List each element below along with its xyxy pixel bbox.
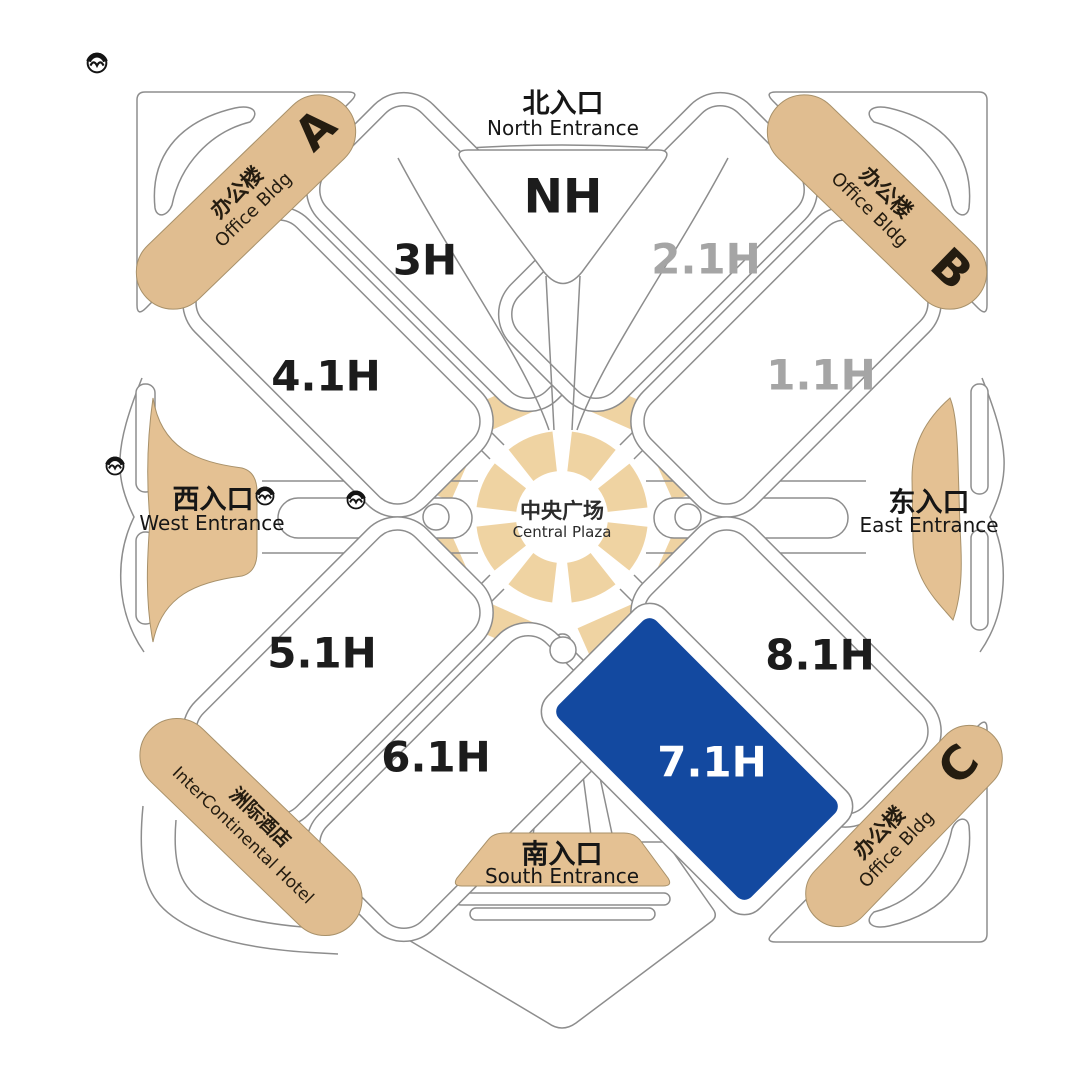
hall-label-51h: 5.1H (267, 629, 377, 678)
north-entrance-label-zh: 北入口 (523, 89, 604, 120)
west-entrance-label-en: West Entrance (139, 511, 284, 535)
hall-label-nh: NH (524, 170, 603, 225)
central-plaza-label-en: Central Plaza (513, 523, 612, 541)
east-entrance-label-en: East Entrance (859, 513, 998, 537)
south-entrance-label-en: South Entrance (485, 864, 639, 888)
hall-label-81h: 8.1H (765, 631, 875, 680)
hall-label-21h: 2.1H (651, 235, 761, 284)
hall-label-61h: 6.1H (381, 733, 491, 782)
hall-label-71h: 7.1H (657, 738, 767, 787)
central-plaza-label-zh: 中央广场 (520, 499, 604, 523)
hall-label-11h: 1.1H (766, 351, 876, 400)
venue-map: 办公楼 Office Bldg A 办公楼 Office Bldg B 办公楼 … (0, 0, 1080, 1080)
north-entrance-label-en: North Entrance (487, 116, 639, 140)
metro-icon (107, 458, 124, 475)
metro-icon (257, 488, 274, 505)
hall-label-41h: 4.1H (271, 352, 381, 401)
venue-map-svg: 办公楼 Office Bldg A 办公楼 Office Bldg B 办公楼 … (0, 0, 1080, 1080)
metro-icon (88, 54, 107, 73)
hall-label-3h: 3H (393, 236, 457, 285)
metro-icon (348, 492, 365, 509)
